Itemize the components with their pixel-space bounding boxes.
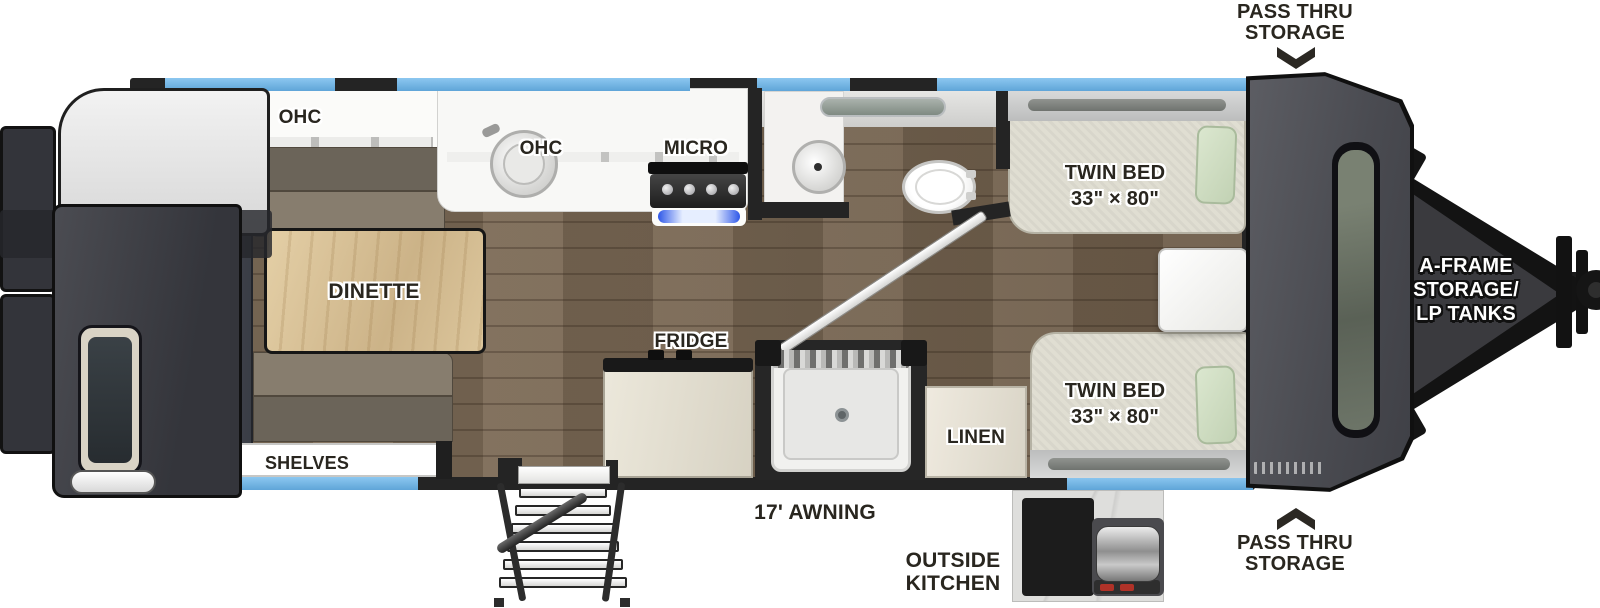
twin-bed-bottom-footrail-slot — [1048, 458, 1230, 470]
step-foot-right — [620, 598, 630, 607]
entry-step-5 — [503, 559, 623, 570]
griddle-knob-red-2 — [1120, 584, 1134, 591]
label-pass-thru-top: PASS THRU STORAGE — [1195, 2, 1395, 44]
stove-blue-glow — [658, 210, 740, 223]
label-bed-bottom-size: 33" × 80" — [1040, 406, 1190, 428]
label-outside-kitchen-line1: OUTSIDE — [873, 549, 1033, 572]
nightstand — [1158, 248, 1248, 332]
dinette-bench-bottom-back — [253, 396, 453, 442]
toilet-hinge-bottom — [966, 192, 976, 200]
label-rear-ohc: OHC — [250, 107, 350, 129]
label-dinette: DINETTE — [304, 281, 444, 303]
rear-bumper-top — [0, 126, 56, 292]
label-pass-thru-bottom: PASS THRU STORAGE — [1195, 533, 1395, 575]
label-shelves: SHELVES — [237, 452, 377, 474]
rear-bumper-bottom — [0, 294, 56, 454]
arrow-up-icon — [1277, 508, 1315, 530]
label-micro: MICRO — [646, 138, 746, 160]
dinette-bench-bottom-seat — [253, 352, 453, 396]
shower-curtain — [773, 350, 909, 368]
step-foot-left — [494, 598, 504, 607]
stove-knob-4 — [728, 184, 739, 195]
dinette-bench-top-back — [253, 147, 445, 191]
toilet-hinge-top — [966, 170, 976, 178]
shower-post-right — [901, 340, 927, 366]
floorplan-canvas: OHC DINETTE SHELVES OHC MICRO FRIDGE — [0, 0, 1600, 608]
tongue-jack-hub — [1588, 282, 1600, 298]
bathroom-bottom-wall — [755, 202, 849, 218]
twin-bed-bottom-pillow — [1195, 365, 1238, 444]
front-cap-window-glass — [1338, 150, 1374, 430]
label-pass-thru-bottom-line1: PASS THRU — [1195, 533, 1395, 554]
label-linen: LINEN — [906, 427, 1046, 449]
entry-step-1 — [519, 487, 607, 498]
outside-kitchen-griddle — [1096, 526, 1160, 582]
window-top-bedroom — [937, 78, 1250, 91]
griddle-knob-red-1 — [1100, 584, 1114, 591]
label-a-frame: A-FRAME STORAGE/ LP TANKS — [1386, 254, 1546, 326]
label-pass-thru-top-line1: PASS THRU — [1195, 2, 1395, 23]
window-bottom-bedroom — [1067, 477, 1253, 490]
toilet-seat-ring — [915, 169, 965, 205]
rear-window-glass — [88, 337, 132, 463]
range-hood — [648, 162, 748, 174]
twin-bed-top-headrail-slot — [1028, 99, 1226, 111]
entry-threshold — [518, 466, 610, 484]
stove-knob-2 — [684, 184, 695, 195]
wall-kitchen-bathroom — [748, 88, 762, 220]
label-kitchen-ohc: OHC — [501, 138, 581, 160]
shelves-end-cap — [436, 441, 452, 479]
shower-post-left — [755, 340, 781, 366]
twin-bed-top-pillow — [1195, 125, 1238, 204]
stove-knob-3 — [706, 184, 717, 195]
fridge — [603, 362, 753, 478]
entry-step-4 — [507, 541, 619, 552]
stove-knob-1 — [662, 184, 673, 195]
label-a-frame-line2: STORAGE/ — [1386, 278, 1546, 302]
coupler-plate-1 — [1556, 236, 1572, 348]
label-outside-kitchen-line2: KITCHEN — [873, 572, 1033, 595]
fridge-top-trim — [603, 358, 753, 372]
window-top-kitchen — [397, 78, 690, 91]
label-bed-top-name: TWIN BED — [1040, 162, 1190, 184]
label-outside-kitchen: OUTSIDE KITCHEN — [873, 549, 1033, 595]
brand-glyphs-icon — [1254, 462, 1324, 474]
label-bed-bottom-name: TWIN BED — [1040, 380, 1190, 402]
shower-drain — [835, 408, 849, 422]
bathroom-sink-drain — [814, 163, 822, 171]
label-fridge: FRIDGE — [631, 331, 751, 353]
label-awning: 17' AWNING — [725, 502, 905, 524]
rear-step-trim — [70, 470, 156, 494]
label-a-frame-line3: LP TANKS — [1386, 302, 1546, 326]
arrow-down-icon — [1277, 47, 1315, 69]
outside-kitchen-cabinet — [1022, 498, 1094, 596]
label-bed-top-size: 33" × 80" — [1040, 188, 1190, 210]
window-top-bathroom — [757, 78, 850, 91]
bathroom-mirror — [820, 97, 946, 117]
label-pass-thru-top-line2: STORAGE — [1195, 23, 1395, 44]
label-pass-thru-bottom-line2: STORAGE — [1195, 554, 1395, 575]
label-a-frame-line1: A-FRAME — [1386, 254, 1546, 278]
